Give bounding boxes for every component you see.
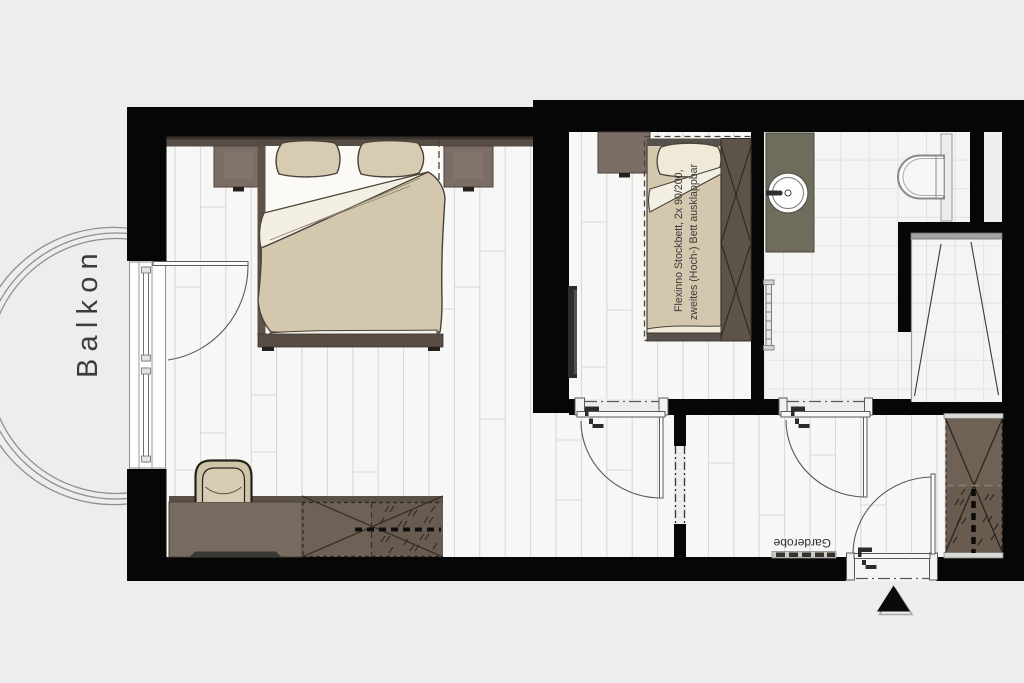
svg-text:Flexinno Stockbett, 2x 90/200,: Flexinno Stockbett, 2x 90/200, xyxy=(673,169,685,312)
svg-text:zweites (Hoch-) Bett ausklappb: zweites (Hoch-) Bett ausklappbar xyxy=(688,163,700,320)
svg-text:Balkon: Balkon xyxy=(72,246,104,378)
svg-text:Garderobe: Garderobe xyxy=(773,536,831,550)
